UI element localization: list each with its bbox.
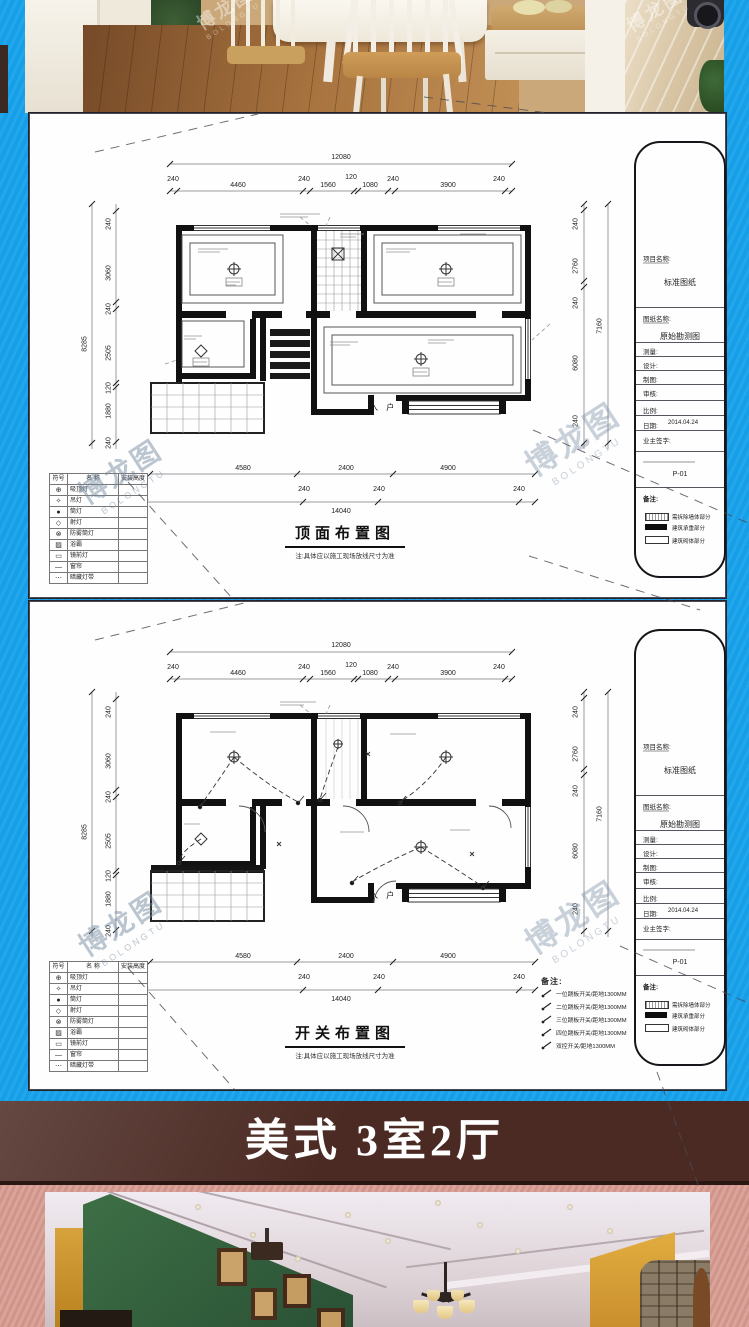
side-chair xyxy=(231,0,303,50)
legend-height xyxy=(119,507,148,518)
field-label: 比例: xyxy=(643,405,658,415)
chandelier-shade xyxy=(459,1300,475,1313)
dim-label: 240 xyxy=(298,486,310,493)
dim-label: 240 xyxy=(106,925,113,937)
separator xyxy=(636,342,724,343)
annotation-marks xyxy=(165,214,550,372)
legend-header: 符号 xyxy=(50,474,68,485)
lamp-symbol-icon: — xyxy=(50,1050,68,1061)
dim-label: 6080 xyxy=(573,355,580,371)
separator xyxy=(636,384,724,385)
dim-label: 6080 xyxy=(573,843,580,859)
separator xyxy=(636,430,724,431)
lamp-symbol-icon: ◇ xyxy=(50,1006,68,1017)
banner-title: 美式 3室2厅 xyxy=(0,1101,749,1181)
field-label: 测量: xyxy=(643,834,658,844)
separator xyxy=(636,918,724,919)
legend-name: 窗帘 xyxy=(68,1050,119,1061)
legend-row: ◇射灯 xyxy=(50,1006,148,1017)
legend-height xyxy=(119,1017,148,1028)
balcony-tile-grid xyxy=(151,383,264,433)
arched-door xyxy=(693,1268,710,1327)
lamp-symbol-icon: ◇ xyxy=(50,518,68,529)
legend-row: —窗帘 xyxy=(50,1050,148,1061)
legend-height xyxy=(119,573,148,584)
field-sublabel xyxy=(643,262,669,264)
legend-row: ✧吊灯 xyxy=(50,496,148,507)
legend-height xyxy=(119,984,148,995)
switch-icon xyxy=(541,1002,553,1011)
legend-row: ⊗防雾筒灯 xyxy=(50,1017,148,1028)
field-label: 制图: xyxy=(643,862,658,872)
picture-frame xyxy=(317,1308,345,1327)
legend-name: 浴霸 xyxy=(68,540,119,551)
legend-header: 符号 xyxy=(50,962,68,973)
field-label: 业主签字: xyxy=(643,923,671,933)
date-value: 2014.04.24 xyxy=(668,420,698,426)
dim-label: 240 xyxy=(106,303,113,315)
switch-note: 二位跷板开关/距地1300MM xyxy=(556,1002,627,1011)
separator xyxy=(636,400,724,401)
downlight xyxy=(195,1204,201,1210)
downlight xyxy=(345,1212,351,1218)
main-chair-spindles xyxy=(353,0,453,58)
separator xyxy=(636,903,724,904)
lamp-symbol-icon: ● xyxy=(50,995,68,1006)
dim-label: 3060 xyxy=(106,265,113,281)
entrance-label: 入 户 xyxy=(370,890,397,901)
field-label: 设计: xyxy=(643,360,658,370)
separator xyxy=(636,370,724,371)
separator xyxy=(636,307,724,308)
lamp-symbol-icon: ▭ xyxy=(50,551,68,562)
field-label: 审核: xyxy=(643,388,658,398)
dim-label: 2760 xyxy=(573,746,580,762)
project-name-value: 标准图纸 xyxy=(636,277,724,288)
lamp-symbol-icon: ● xyxy=(50,507,68,518)
dim-label: 2400 xyxy=(338,465,354,472)
legend-name: 吸顶灯 xyxy=(68,485,119,496)
separator xyxy=(636,795,724,796)
dim-label: 4900 xyxy=(440,465,456,472)
legend-name: 吸顶灯 xyxy=(68,973,119,984)
separator xyxy=(636,415,724,416)
dim-label: 1080 xyxy=(362,182,378,189)
floor-plan-walls xyxy=(176,225,531,415)
legend-name: 吊灯 xyxy=(68,496,119,507)
legend-name: 暗藏灯带 xyxy=(68,1061,119,1072)
legend-height xyxy=(119,540,148,551)
legend-height xyxy=(119,496,148,507)
lamp-symbol-icon: ⊗ xyxy=(50,1017,68,1028)
plan-title: 开关布置图 xyxy=(285,1022,405,1048)
chandelier-shade xyxy=(451,1290,464,1301)
switch-note: 一位跷板开关/距地1300MM xyxy=(556,989,627,998)
copyright-smudge xyxy=(643,949,695,951)
legend-row: ⋯暗藏灯带 xyxy=(50,573,148,584)
legend-row: ⊕吸顶灯 xyxy=(50,973,148,984)
plan-note: 注:具体应以施工现场放线尺寸为准 xyxy=(255,550,435,560)
dim-label: 7160 xyxy=(597,318,604,334)
plan-title-block: 开关布置图 注:具体应以施工现场放线尺寸为准 xyxy=(255,1022,435,1060)
lamp-symbol-icon: ⋯ xyxy=(50,573,68,584)
downlight xyxy=(515,1248,521,1254)
legend-row: ⊕吸顶灯 xyxy=(50,485,148,496)
field-sublabel xyxy=(643,322,669,324)
drawing-number: P-01 xyxy=(636,471,724,478)
separator xyxy=(636,830,724,831)
dim-label: 240 xyxy=(298,974,310,981)
legend-header: 安装高度 xyxy=(119,474,148,485)
lamp-symbol-icon: ⊗ xyxy=(50,529,68,540)
dim-label: 3060 xyxy=(106,753,113,769)
swatch-label: 建筑砌体部分 xyxy=(672,537,705,545)
chair-leg xyxy=(381,78,386,113)
dim-label: 240 xyxy=(373,974,385,981)
legend-header: 名 称 xyxy=(68,474,119,485)
legend-header: 安装高度 xyxy=(119,962,148,973)
dim-label: 1080 xyxy=(362,670,378,677)
downlight xyxy=(385,1238,391,1244)
wall-demolish-swatch xyxy=(645,1001,669,1009)
downlight xyxy=(435,1200,441,1206)
legend-height xyxy=(119,1050,148,1061)
legend-name: 暗藏灯带 xyxy=(68,573,119,584)
field-sublabel xyxy=(643,750,669,752)
separator xyxy=(636,975,724,976)
remarks-label: 备注: xyxy=(643,981,658,991)
right-cabinet xyxy=(585,0,627,113)
dim-label: 240 xyxy=(493,664,505,671)
dim-label: 120 xyxy=(345,174,357,181)
dim-label: 7160 xyxy=(597,806,604,822)
field-label: 日期: xyxy=(643,908,658,918)
drawing-name-value: 原始勘测图 xyxy=(636,331,724,342)
legend-height xyxy=(119,551,148,562)
dim-label: 240 xyxy=(513,974,525,981)
dim-label: 240 xyxy=(387,176,399,183)
hall-tile-grid xyxy=(317,231,361,311)
switch-icon xyxy=(541,989,553,998)
dim-label: 8285 xyxy=(82,824,89,840)
dim-label: 12080 xyxy=(331,642,350,649)
dim-label: 8285 xyxy=(82,336,89,352)
separator xyxy=(636,487,724,488)
lamp-symbol-icon: ⊕ xyxy=(50,973,68,984)
legend-row: ◇射灯 xyxy=(50,518,148,529)
legend-name: 镜前灯 xyxy=(68,1039,119,1050)
drawing-number: P-01 xyxy=(636,959,724,966)
balcony-tile-grid xyxy=(151,871,264,921)
legend-row: ▭镜前灯 xyxy=(50,1039,148,1050)
legend-name: 射灯 xyxy=(68,1006,119,1017)
dim-label: 14040 xyxy=(331,996,350,1003)
dim-label: 3900 xyxy=(440,182,456,189)
lighting-legend-table: 符号名 称安装高度 ⊕吸顶灯 ✧吊灯 ●筒灯 ◇射灯 ⊗防雾筒灯 ▨浴霸 ▭镜前… xyxy=(49,473,148,584)
lamp-symbol-icon: — xyxy=(50,562,68,573)
switch-note: 三位跷板开关/距地1300MM xyxy=(556,1015,627,1024)
dim-label: 1880 xyxy=(106,403,113,419)
downlight xyxy=(567,1204,573,1210)
dim-label: 240 xyxy=(493,176,505,183)
dim-label: 240 xyxy=(106,791,113,803)
lamp-symbol-icon: ▨ xyxy=(50,540,68,551)
dim-label: 240 xyxy=(573,785,580,797)
legend-row: ▨浴霸 xyxy=(50,1028,148,1039)
dim-label: 240 xyxy=(106,218,113,230)
entrance-label: 入 户 xyxy=(370,402,397,413)
legend-name: 浴霸 xyxy=(68,1028,119,1039)
dim-label: 240 xyxy=(298,176,310,183)
dim-label: 240 xyxy=(573,415,580,427)
dim-label: 240 xyxy=(106,437,113,449)
side-chair-seat xyxy=(227,46,305,64)
dim-label: 4460 xyxy=(230,670,246,677)
legend-row: ▨浴霸 xyxy=(50,540,148,551)
dim-label: 2505 xyxy=(106,833,113,849)
bottom-interior-photo xyxy=(45,1192,710,1327)
dimension-ticks xyxy=(89,649,611,993)
top-interior-photo: 博龙图 BOLONGTU 博龙图 BOLONGTU xyxy=(25,0,724,113)
dim-label: 4460 xyxy=(230,182,246,189)
switch-icon xyxy=(541,1041,553,1050)
dim-label: 240 xyxy=(106,706,113,718)
load-bearing-swatch xyxy=(645,1012,667,1018)
dim-label: 120 xyxy=(106,382,113,394)
dark-furniture xyxy=(60,1310,132,1327)
legend-height xyxy=(119,485,148,496)
load-bearing-swatch xyxy=(645,524,667,530)
dim-label: 240 xyxy=(167,664,179,671)
chair-leg xyxy=(423,78,428,113)
legend-row: ⊗防雾筒灯 xyxy=(50,529,148,540)
dim-label: 3900 xyxy=(440,670,456,677)
chandelier-stem xyxy=(444,1262,447,1294)
remarks-label: 备注: xyxy=(643,493,658,503)
pillow xyxy=(513,0,545,15)
field-label: 日期: xyxy=(643,420,658,430)
plan-note: 注:具体应以施工现场放线尺寸为准 xyxy=(255,1050,435,1060)
lighting-legend-table: 符号名 称安装高度 ⊕吸顶灯 ✧吊灯 ●筒灯 ◇射灯 ⊗防雾筒灯 ▨浴霸 ▭镜前… xyxy=(49,961,148,1072)
legend-height xyxy=(119,562,148,573)
legend-header: 名 称 xyxy=(68,962,119,973)
dim-label: 240 xyxy=(167,176,179,183)
legend-row: ●筒灯 xyxy=(50,995,148,1006)
legend-height xyxy=(119,1039,148,1050)
copyright-smudge xyxy=(643,461,695,463)
hall-tile-grid xyxy=(326,719,358,799)
legend-row: ⋯暗藏灯带 xyxy=(50,1061,148,1072)
legend-height xyxy=(119,995,148,1006)
dim-label: 240 xyxy=(298,664,310,671)
switch-note: 双控开关/距地1300MM xyxy=(556,1041,615,1050)
plan-title: 顶面布置图 xyxy=(285,522,405,548)
separator xyxy=(636,844,724,845)
legend-name: 筒灯 xyxy=(68,507,119,518)
switch-icon xyxy=(541,1028,553,1037)
dim-label: 2400 xyxy=(338,953,354,960)
dim-label: 2760 xyxy=(573,258,580,274)
field-label: 测量: xyxy=(643,346,658,356)
lamp-symbol-icon: ⊕ xyxy=(50,485,68,496)
picture-frame xyxy=(251,1288,277,1320)
field-label: 设计: xyxy=(643,848,658,858)
legend-height xyxy=(119,529,148,540)
projector xyxy=(251,1242,283,1260)
field-label: 制图: xyxy=(643,374,658,384)
blueprint-ceiling-plan: 12080 240 4460 240 1560 120 1080 240 390… xyxy=(29,113,726,598)
field-sublabel xyxy=(643,810,669,812)
masonry-swatch xyxy=(645,536,669,544)
separator xyxy=(636,872,724,873)
separator xyxy=(636,888,724,889)
legend-row: ●筒灯 xyxy=(50,507,148,518)
dim-label: 120 xyxy=(106,870,113,882)
lamp-symbol-icon: ✧ xyxy=(50,984,68,995)
legend-name: 防雾筒灯 xyxy=(68,529,119,540)
field-label: 审核: xyxy=(643,876,658,886)
dim-label: 1880 xyxy=(106,891,113,907)
swatch-label: 建筑砌体部分 xyxy=(672,1025,705,1033)
drawing-title-block: 项目名称: 标准图纸 图纸名称: 原始勘测图 测量: 设计: 制图: 审核: 比… xyxy=(634,141,726,578)
style-banner: 美式 3室2厅 xyxy=(0,1101,749,1181)
dim-label: 240 xyxy=(573,903,580,915)
dim-label: 1560 xyxy=(320,670,336,677)
field-label: 业主签字: xyxy=(643,435,671,445)
legend-row: ▭镜前灯 xyxy=(50,551,148,562)
legend-height xyxy=(119,518,148,529)
legend-name: 吊灯 xyxy=(68,984,119,995)
project-name-value: 标准图纸 xyxy=(636,765,724,776)
dim-label: 240 xyxy=(373,486,385,493)
picture-frame xyxy=(217,1248,247,1286)
dim-label: 120 xyxy=(345,662,357,669)
dim-label: 4580 xyxy=(235,953,251,960)
chandelier-shade xyxy=(427,1290,440,1301)
dim-label: 12080 xyxy=(331,154,350,161)
separator xyxy=(636,858,724,859)
field-label: 比例: xyxy=(643,893,658,903)
legend-name: 筒灯 xyxy=(68,995,119,1006)
downlight xyxy=(250,1232,256,1238)
swatch-label: 建筑承重部分 xyxy=(672,1012,705,1020)
product-detail-page: 博龙图 BOLONGTU 博龙图 BOLONGTU xyxy=(0,0,749,1327)
legend-name: 防雾筒灯 xyxy=(68,1017,119,1028)
date-value: 2014.04.24 xyxy=(668,908,698,914)
separator xyxy=(636,356,724,357)
drawing-title-block: 项目名称: 标准图纸 图纸名称: 原始勘测图 测量: 设计: 制图: 审核: 比… xyxy=(634,629,726,1066)
chandelier-shade xyxy=(437,1306,453,1319)
separator xyxy=(636,451,724,452)
ceiling-hatch-strips xyxy=(270,329,310,379)
legend-height xyxy=(119,1006,148,1017)
switch-points xyxy=(177,793,489,890)
legend-row: ✧吊灯 xyxy=(50,984,148,995)
dim-label: 4900 xyxy=(440,953,456,960)
downlight xyxy=(477,1222,483,1228)
pillow xyxy=(545,0,572,13)
plan-title-block: 顶面布置图 注:具体应以施工现场放线尺寸为准 xyxy=(255,522,435,560)
downlight xyxy=(295,1256,301,1262)
legend-name: 镜前灯 xyxy=(68,551,119,562)
chandelier-shade xyxy=(413,1300,429,1313)
lamp-symbol-icon: ⋯ xyxy=(50,1061,68,1072)
swatch-label: 需拆除墙体部分 xyxy=(672,1001,711,1009)
dim-label: 1560 xyxy=(320,182,336,189)
dim-label: 2505 xyxy=(106,345,113,361)
legend-height xyxy=(119,1028,148,1039)
lamp-symbol-icon: ▨ xyxy=(50,1028,68,1039)
lamp-symbol-icon: ✧ xyxy=(50,496,68,507)
legend-name: 窗帘 xyxy=(68,562,119,573)
switch-icon xyxy=(541,1015,553,1024)
masonry-swatch xyxy=(645,1024,669,1032)
dimension-ticks xyxy=(89,161,611,505)
drawing-name-value: 原始勘测图 xyxy=(636,819,724,830)
dim-label: 14040 xyxy=(331,508,350,515)
swatch-label: 建筑承重部分 xyxy=(672,524,705,532)
dim-label: 240 xyxy=(573,218,580,230)
dark-edge-object xyxy=(0,45,8,113)
legend-height xyxy=(119,973,148,984)
legend-height xyxy=(119,1061,148,1072)
switch-note: 四位跷板开关/距地1300MM xyxy=(556,1028,627,1037)
legend-row: —窗帘 xyxy=(50,562,148,573)
washing-machine-door xyxy=(694,2,721,29)
wall-demolish-swatch xyxy=(645,513,669,521)
picture-frame xyxy=(283,1274,311,1308)
dim-label: 240 xyxy=(573,297,580,309)
legend-name: 射灯 xyxy=(68,518,119,529)
plant-right xyxy=(699,60,724,112)
separator xyxy=(636,939,724,940)
downlight xyxy=(607,1228,613,1234)
dim-label: 240 xyxy=(387,664,399,671)
blueprint-switch-plan: 12080 240 4460 240 1560 120 1080 240 390… xyxy=(29,601,726,1090)
dim-label: 240 xyxy=(513,486,525,493)
dim-label: 240 xyxy=(573,706,580,718)
lamp-symbol-icon: ▭ xyxy=(50,1039,68,1050)
dim-label: 4580 xyxy=(235,465,251,472)
swatch-label: 需拆除墙体部分 xyxy=(672,513,711,521)
